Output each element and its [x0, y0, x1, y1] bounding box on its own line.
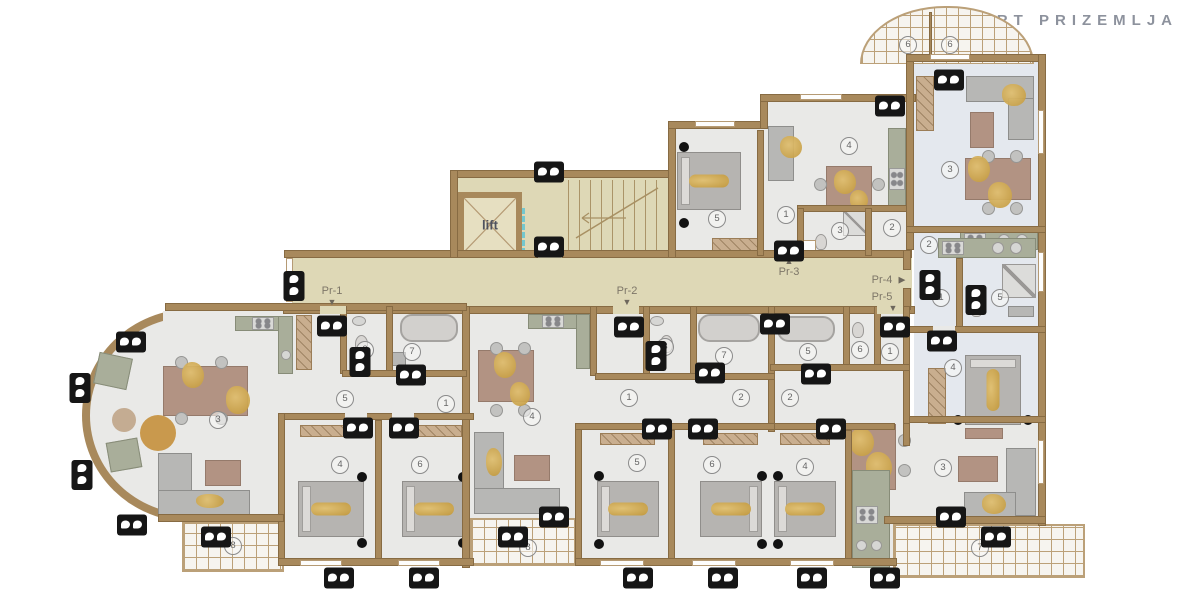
kitchen-counter — [576, 314, 590, 369]
window — [398, 560, 440, 566]
chair — [1010, 202, 1023, 215]
camera-icon — [797, 568, 827, 589]
room-number-marker: 4 — [523, 408, 541, 426]
room-number-marker: 4 — [840, 137, 858, 155]
window — [930, 54, 970, 60]
bedside-dot — [679, 218, 689, 228]
wall — [903, 416, 1046, 423]
entrance-arrow-icon: ▼ — [889, 303, 898, 313]
wall — [906, 226, 1046, 233]
figure-on-sofa — [982, 494, 1006, 514]
room-number-marker: 2 — [781, 389, 799, 407]
camera-icon — [409, 568, 439, 589]
bath-cabinet — [1008, 306, 1034, 317]
camera-icon — [695, 363, 725, 384]
wall — [874, 306, 881, 368]
camera-icon — [880, 317, 910, 338]
window — [800, 94, 842, 100]
room-number-marker: 6 — [851, 341, 869, 359]
coffee-table — [514, 455, 550, 481]
wall — [668, 121, 676, 258]
plant — [182, 362, 204, 388]
double-bed — [402, 481, 466, 537]
armchair — [106, 437, 143, 472]
plant — [968, 156, 990, 182]
armchair — [93, 352, 133, 390]
camera-icon — [201, 527, 231, 548]
camera-icon — [870, 568, 900, 589]
plant — [850, 428, 874, 456]
wall — [770, 364, 910, 371]
double-bed — [298, 481, 364, 537]
camera-icon — [116, 332, 146, 353]
camera-icon — [801, 364, 831, 385]
lift-label: lift — [482, 218, 498, 233]
bedside-dot — [594, 539, 604, 549]
double-bed — [597, 481, 659, 537]
figure-on-sofa — [486, 448, 502, 476]
entrance-arrow-icon: ▼ — [328, 297, 337, 307]
window — [695, 121, 735, 127]
plant — [1002, 84, 1026, 106]
figure-on-sofa — [196, 494, 224, 508]
camera-icon — [350, 347, 371, 377]
window — [790, 560, 834, 566]
entrance-arrow-icon: ▶ — [899, 275, 906, 286]
sink — [856, 540, 867, 551]
wall — [906, 54, 1046, 62]
closet — [296, 315, 312, 370]
wall — [797, 205, 907, 212]
plant — [988, 182, 1012, 208]
stove — [889, 168, 905, 190]
chair — [518, 342, 531, 355]
camera-icon — [816, 419, 846, 440]
window — [600, 560, 644, 566]
room-number-marker: 2 — [883, 219, 901, 237]
wall — [956, 258, 963, 330]
camera-icon — [534, 162, 564, 183]
camera-icon — [934, 70, 964, 91]
camera-icon — [708, 568, 738, 589]
coffee-table — [958, 456, 998, 482]
lift-door-dashed — [522, 208, 525, 254]
bedside-dot — [773, 471, 783, 481]
sink — [871, 540, 882, 551]
chair — [215, 356, 228, 369]
staircase-direction-line — [568, 180, 666, 252]
camera-icon — [284, 271, 305, 301]
tv-shelf — [965, 428, 1003, 439]
room-number-marker: 6 — [703, 456, 721, 474]
room-number-marker: 1 — [437, 395, 455, 413]
stove — [856, 506, 878, 524]
camera-icon — [324, 568, 354, 589]
entrance-label-pr-1: Pr-1 — [322, 285, 343, 297]
room-number-marker: 2 — [920, 236, 938, 254]
wall — [843, 306, 850, 368]
entrance-label-pr-3: Pr-3 — [779, 266, 800, 278]
window — [692, 560, 736, 566]
round-table — [140, 415, 176, 451]
room-number-marker: 7 — [403, 343, 421, 361]
wall — [462, 306, 470, 568]
wall — [575, 423, 775, 430]
bathtub — [400, 314, 458, 342]
camera-icon — [927, 331, 957, 352]
wall — [845, 430, 852, 565]
double-bed — [677, 152, 741, 210]
sink — [992, 242, 1004, 254]
room-number-marker: 3 — [209, 411, 227, 429]
camera-icon — [396, 365, 426, 386]
sink — [352, 316, 366, 326]
window — [1038, 110, 1044, 154]
wall — [590, 306, 597, 376]
window — [300, 560, 342, 566]
chair — [872, 178, 885, 191]
corridor-floor — [292, 258, 912, 306]
double-bed — [774, 481, 836, 537]
sink — [281, 350, 291, 360]
wardrobe — [916, 76, 934, 131]
camera-icon — [774, 241, 804, 262]
camera-icon — [623, 568, 653, 589]
kitchen-counter — [888, 128, 906, 206]
camera-icon — [981, 527, 1011, 548]
camera-icon — [936, 507, 966, 528]
bedside-dot — [679, 142, 689, 152]
coffee-table — [205, 460, 241, 486]
room-number-marker: 6 — [411, 456, 429, 474]
entrance-label-pr-2: Pr-2 — [617, 285, 638, 297]
bedside-dot — [757, 539, 767, 549]
room-number-marker: 3 — [941, 161, 959, 179]
plant — [510, 382, 530, 406]
camera-icon — [498, 527, 528, 548]
wall — [668, 430, 675, 565]
room-number-marker: 5 — [799, 343, 817, 361]
sink — [650, 316, 664, 326]
wall — [375, 420, 382, 566]
camera-icon — [920, 270, 941, 300]
tv-stand — [970, 112, 994, 148]
camera-icon — [646, 341, 667, 371]
camera-icon — [642, 419, 672, 440]
camera-icon — [534, 237, 564, 258]
toilet — [852, 322, 864, 338]
chair — [898, 464, 911, 477]
bedside-dot — [357, 538, 367, 548]
camera-icon — [688, 419, 718, 440]
chair — [1010, 150, 1023, 163]
wall — [903, 250, 911, 270]
stove — [252, 317, 274, 330]
camera-icon — [343, 418, 373, 439]
entrance-arrow-icon: ▼ — [623, 297, 632, 307]
wall — [575, 423, 582, 566]
stove — [942, 241, 964, 255]
plant — [226, 386, 250, 414]
wall — [595, 373, 775, 380]
lift-shaft: lift — [458, 192, 522, 258]
camera-icon — [317, 316, 347, 337]
side-table — [112, 408, 136, 432]
chair — [175, 412, 188, 425]
camera-icon — [117, 515, 147, 536]
camera-icon — [760, 314, 790, 335]
room-number-marker: 5 — [336, 390, 354, 408]
camera-icon — [70, 373, 91, 403]
double-bed — [700, 481, 762, 537]
wall — [165, 303, 467, 311]
door-gap — [613, 306, 639, 314]
wall — [450, 170, 458, 258]
plant — [494, 352, 516, 378]
wall — [158, 514, 284, 522]
window — [1038, 440, 1044, 484]
kitchen-counter — [278, 316, 293, 374]
wall — [386, 306, 393, 374]
room-number-marker: 1 — [620, 389, 638, 407]
wall — [278, 413, 285, 566]
camera-icon — [875, 96, 905, 117]
camera-icon — [389, 418, 419, 439]
camera-icon — [539, 507, 569, 528]
room-number-marker: 4 — [331, 456, 349, 474]
room-number-marker: 3 — [831, 222, 849, 240]
double-bed — [965, 355, 1021, 425]
wall — [906, 54, 914, 250]
room-number-marker: 4 — [944, 359, 962, 377]
room-number-marker: 1 — [777, 206, 795, 224]
bathtub — [698, 314, 760, 342]
floor-plan: TLOCRT PRIZEMLJA lift — [0, 0, 1186, 590]
room-number-marker: 6 — [941, 36, 959, 54]
room-number-marker: 4 — [796, 458, 814, 476]
wall — [278, 413, 474, 420]
camera-icon — [72, 460, 93, 490]
room-number-marker: 3 — [934, 459, 952, 477]
bedside-dot — [357, 472, 367, 482]
chair — [490, 404, 503, 417]
bedside-dot — [594, 471, 604, 481]
window — [1038, 252, 1044, 292]
sink — [1010, 242, 1022, 254]
room-number-marker: 5 — [991, 289, 1009, 307]
entrance-label-pr-4: Pr-4 — [872, 274, 893, 286]
bedside-dot — [757, 471, 767, 481]
room-number-marker: 5 — [708, 210, 726, 228]
toilet — [815, 234, 827, 250]
wall — [865, 208, 872, 256]
camera-icon — [966, 285, 987, 315]
room-number-marker: 6 — [899, 36, 917, 54]
chair — [814, 178, 827, 191]
bedside-dot — [773, 539, 783, 549]
room-number-marker: 2 — [732, 389, 750, 407]
room-number-marker: 5 — [628, 454, 646, 472]
door-gap — [320, 306, 346, 314]
room-number-marker: 1 — [881, 343, 899, 361]
plant — [780, 136, 802, 158]
entrance-label-pr-5: Pr-5 — [872, 291, 893, 303]
stove — [542, 315, 564, 328]
wall — [757, 130, 764, 256]
camera-icon — [614, 317, 644, 338]
